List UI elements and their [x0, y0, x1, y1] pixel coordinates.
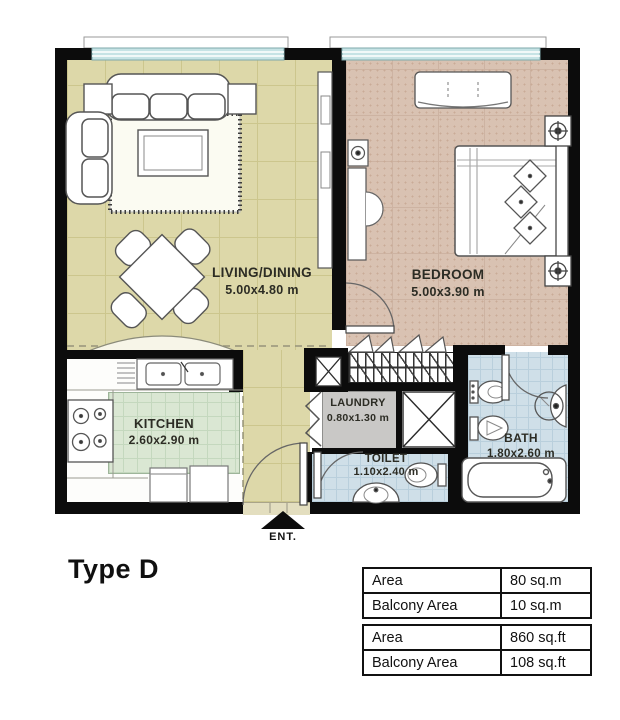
- living-dining-label: LIVING/DINING 5.00x4.80 m: [212, 264, 312, 298]
- room-name: KITCHEN: [129, 416, 200, 433]
- bed: [455, 142, 568, 260]
- balcony-area-label: Balcony Area: [363, 593, 501, 618]
- balcony-area-label: Balcony Area: [363, 650, 501, 675]
- kitchen-sink: [117, 359, 233, 389]
- bath-basin: [535, 385, 566, 427]
- shaft-large: [403, 392, 455, 447]
- room-dims: 1.10x2.40 m: [353, 466, 418, 480]
- table-row: Area 860 sq.ft: [363, 625, 591, 650]
- entrance-label: ENT.: [269, 531, 297, 543]
- bath-door: [502, 355, 548, 400]
- bathtub: [462, 458, 566, 502]
- kitchen-label: KITCHEN 2.60x2.90 m: [129, 416, 200, 448]
- curved-counter: [86, 336, 238, 352]
- area-label: Area: [363, 568, 501, 593]
- wardrobe-front-panels: [349, 335, 446, 352]
- room-name: BATH: [487, 431, 555, 447]
- entrance-arrow-icon: [261, 511, 305, 529]
- room-name: LAUNDRY: [327, 396, 389, 411]
- loveseat: [66, 112, 112, 204]
- room-dims: 5.00x4.80 m: [212, 282, 312, 298]
- laundry-label: LAUNDRY 0.80x1.30 m: [327, 396, 389, 425]
- tv-cabinet-living: [318, 72, 332, 268]
- laundry-bifold-door: [306, 392, 321, 446]
- shaft-small: [316, 357, 341, 386]
- headboard: [556, 142, 568, 260]
- floor-plan-canvas: LIVING/DINING 5.00x4.80 m BEDROOM 5.00x3…: [0, 0, 620, 720]
- stove: [68, 400, 113, 462]
- plan-title: Type D: [68, 554, 159, 585]
- room-dims: 2.60x2.90 m: [129, 433, 200, 449]
- room-dims: 0.80x1.30 m: [327, 411, 389, 425]
- entry-door: [243, 443, 307, 505]
- room-dims: 5.00x3.90 m: [411, 284, 485, 300]
- area-value: 80 sq.m: [501, 568, 591, 593]
- bedroom-label: BEDROOM 5.00x3.90 m: [411, 266, 485, 300]
- area-table-imperial: Area 860 sq.ft Balcony Area 108 sq.ft: [362, 624, 592, 676]
- coffee-table: [138, 130, 208, 176]
- toilet-basin: [353, 483, 399, 503]
- room-name: TOILET: [353, 452, 418, 466]
- table-row: Balcony Area 108 sq.ft: [363, 650, 591, 675]
- dresser: [415, 72, 511, 108]
- bedroom-wall-unit: [348, 140, 383, 260]
- bedroom-door: [346, 283, 394, 333]
- bath-label: BATH 1.80x2.60 m: [487, 431, 555, 462]
- toilet-label: TOILET 1.10x2.40 m: [353, 452, 418, 480]
- table-row: Balcony Area 10 sq.m: [363, 593, 591, 618]
- area-table-metric: Area 80 sq.m Balcony Area 10 sq.m: [362, 567, 592, 619]
- living-window: [92, 48, 284, 60]
- threshold-ticks: [270, 503, 287, 513]
- table-row: Area 80 sq.m: [363, 568, 591, 593]
- sofa: [106, 74, 230, 120]
- drainboard-hatch: [117, 363, 135, 383]
- room-dims: 1.80x2.60 m: [487, 447, 555, 462]
- area-label: Area: [363, 625, 501, 650]
- balcony-edge: [84, 37, 546, 48]
- room-name: BEDROOM: [411, 266, 485, 284]
- area-value: 860 sq.ft: [501, 625, 591, 650]
- balcony-area-value: 10 sq.m: [501, 593, 591, 618]
- balcony-area-value: 108 sq.ft: [501, 650, 591, 675]
- room-name: LIVING/DINING: [212, 264, 312, 282]
- bedroom-window: [342, 48, 540, 60]
- kitchen-appliances: [150, 466, 228, 502]
